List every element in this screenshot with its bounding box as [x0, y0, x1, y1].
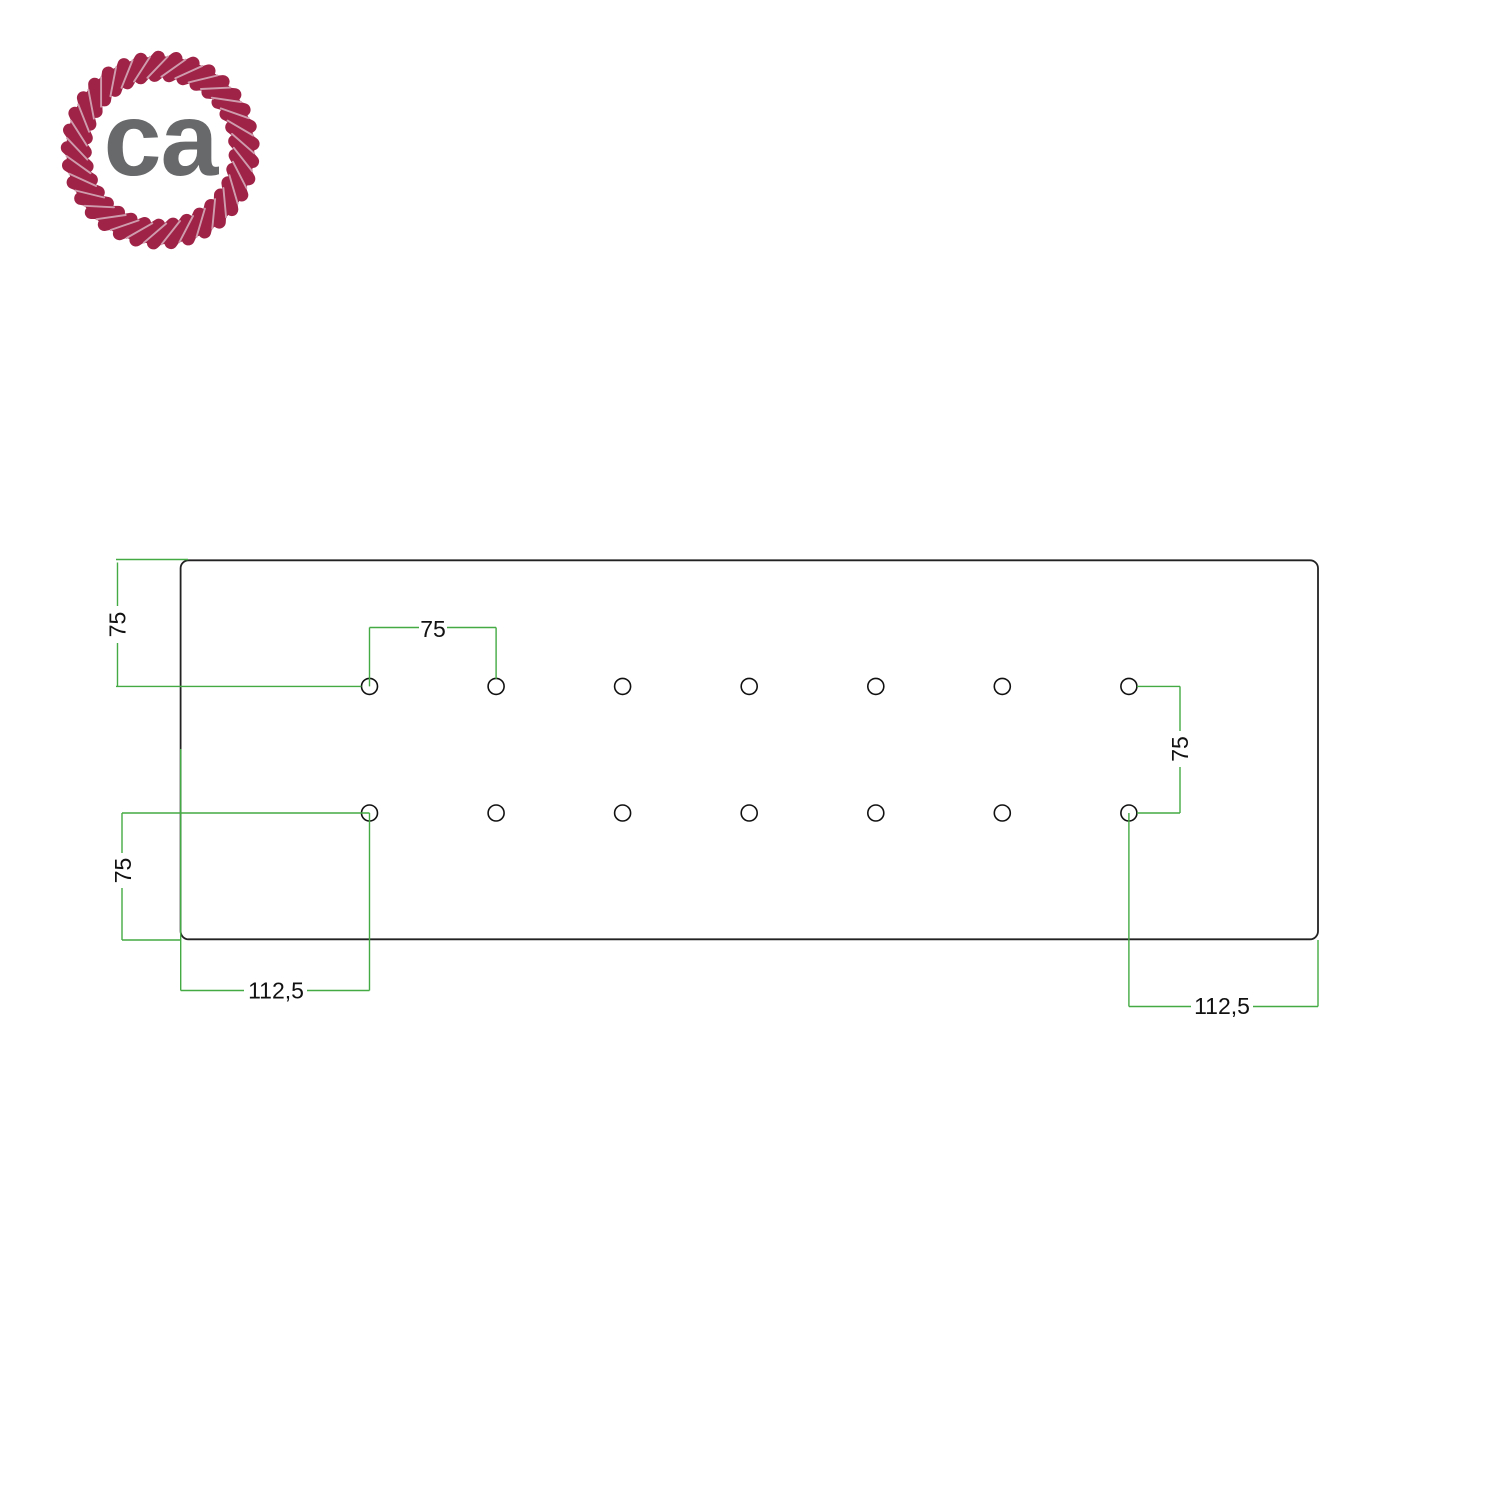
svg-text:75: 75	[110, 858, 136, 884]
svg-text:75: 75	[1167, 736, 1193, 762]
svg-text:112,5: 112,5	[248, 978, 304, 1004]
svg-text:75: 75	[105, 612, 131, 638]
svg-text:ca: ca	[104, 82, 220, 198]
svg-text:75: 75	[420, 616, 446, 642]
svg-text:112,5: 112,5	[1194, 993, 1250, 1019]
